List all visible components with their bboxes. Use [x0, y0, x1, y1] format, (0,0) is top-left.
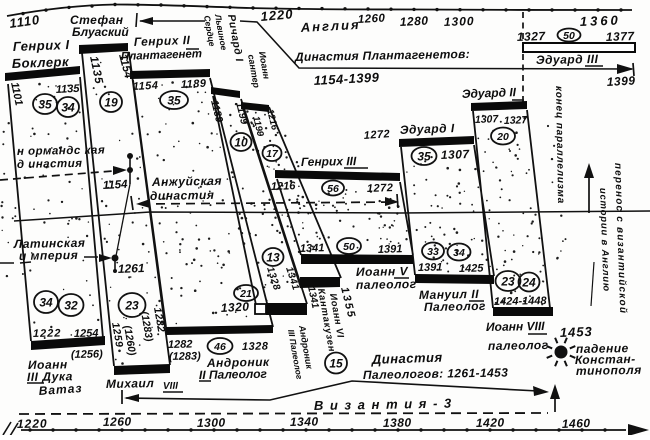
svg-text:35: 35	[167, 93, 181, 107]
svg-text:1135: 1135	[56, 83, 81, 96]
svg-text:Генрих I: Генрих I	[13, 37, 70, 54]
svg-text:1222: 1222	[33, 328, 62, 340]
svg-text:34: 34	[453, 247, 465, 259]
svg-text:Эдуард II: Эдуард II	[462, 85, 517, 101]
svg-text:Боклерк: Боклерк	[12, 54, 71, 71]
svg-text:н ормандс кая: н ормандс кая	[17, 144, 105, 158]
svg-text:24: 24	[521, 275, 536, 289]
svg-text:10: 10	[234, 135, 248, 149]
svg-text:35: 35	[417, 149, 431, 163]
svg-text:1360: 1360	[580, 13, 621, 29]
svg-text:33: 33	[427, 246, 439, 258]
svg-text:Эдуард I: Эдуард I	[400, 121, 455, 137]
svg-text:Михаил: Михаил	[106, 376, 155, 391]
svg-text:VIII: VIII	[163, 381, 178, 392]
svg-text:34: 34	[39, 295, 53, 309]
svg-text:Анжуйская: Анжуйская	[151, 174, 222, 189]
svg-text:II Палеолог: II Палеолог	[199, 367, 268, 382]
svg-text:1453: 1453	[560, 324, 593, 340]
svg-text:13: 13	[266, 250, 280, 264]
svg-text:1377: 1377	[606, 29, 636, 44]
svg-text:Эдуард III: Эдуард III	[536, 52, 599, 67]
svg-text:1420: 1420	[476, 416, 505, 430]
svg-text:50: 50	[563, 30, 575, 42]
svg-text:15: 15	[329, 356, 343, 370]
svg-text:1425: 1425	[459, 263, 485, 275]
svg-text:34: 34	[61, 100, 75, 114]
svg-text:Палеологов: 1261-1453: Палеологов: 1261-1453	[363, 365, 509, 382]
svg-text:1307: 1307	[441, 147, 471, 162]
svg-text:1424-1448: 1424-1448	[494, 295, 548, 308]
svg-text:50: 50	[343, 241, 355, 253]
svg-text:1282: 1282	[168, 339, 193, 351]
svg-text:тинополя: тинополя	[576, 363, 642, 378]
svg-text:1216: 1216	[271, 180, 297, 193]
svg-text:Генрих III: Генрих III	[301, 154, 357, 169]
svg-text:палеолог: палеолог	[488, 338, 549, 353]
svg-text:Палеолог: Палеолог	[424, 299, 486, 314]
svg-text:Иоанн VIII: Иоанн VIII	[486, 319, 546, 334]
svg-text:1220: 1220	[17, 416, 48, 431]
svg-text:1380: 1380	[383, 416, 412, 430]
svg-text:1154: 1154	[103, 179, 129, 192]
svg-text:23: 23	[124, 298, 139, 312]
svg-text:1272: 1272	[363, 128, 390, 142]
svg-text:(1283): (1283)	[169, 350, 201, 363]
svg-text:династия: династия	[150, 188, 215, 203]
svg-text:д инастия: д инастия	[17, 158, 83, 171]
svg-text:1189: 1189	[181, 78, 208, 91]
svg-text:Англия: Англия	[299, 17, 361, 35]
svg-text:1391: 1391	[418, 262, 443, 274]
svg-text:1340: 1340	[290, 415, 319, 429]
svg-text:1300: 1300	[197, 416, 226, 430]
svg-text:1327: 1327	[504, 114, 529, 127]
svg-text:1307: 1307	[475, 113, 500, 126]
svg-text:17: 17	[266, 148, 279, 160]
svg-text:1320: 1320	[220, 300, 249, 315]
svg-text:1328: 1328	[242, 341, 269, 353]
svg-text:1272: 1272	[367, 182, 394, 195]
svg-text:1260: 1260	[358, 13, 386, 26]
svg-text:В и з а н т и я - 3: В и з а н т и я - 3	[314, 396, 453, 413]
svg-text:1300: 1300	[444, 14, 475, 29]
svg-text:19: 19	[104, 95, 118, 109]
svg-text:23: 23	[500, 274, 515, 288]
svg-text:35: 35	[38, 97, 52, 111]
svg-text:1220: 1220	[260, 6, 294, 24]
svg-text:46: 46	[213, 341, 226, 353]
svg-text:палеолог: палеолог	[356, 277, 417, 292]
svg-text:Генрих II: Генрих II	[134, 33, 191, 49]
svg-text:32: 32	[64, 298, 78, 312]
svg-text:56: 56	[327, 183, 339, 195]
svg-text:20: 20	[496, 131, 509, 143]
svg-text:Династия: Династия	[371, 350, 443, 367]
svg-text:21: 21	[239, 288, 252, 300]
svg-text:1260: 1260	[103, 415, 132, 429]
svg-text:1399: 1399	[606, 74, 635, 89]
svg-text:Блуаский: Блуаский	[72, 25, 129, 39]
svg-text:(1256): (1256)	[71, 348, 103, 361]
svg-text:1280: 1280	[399, 14, 428, 29]
svg-text:1154: 1154	[133, 80, 159, 93]
svg-text:и мперия: и мперия	[19, 248, 79, 263]
svg-text:1391: 1391	[378, 243, 403, 256]
svg-text:1254: 1254	[74, 328, 99, 340]
svg-text:1341: 1341	[300, 242, 325, 255]
svg-text:1327: 1327	[517, 29, 547, 44]
svg-text:1261: 1261	[118, 261, 145, 276]
svg-text:конец параллелизма: конец параллелизма	[553, 86, 566, 204]
svg-text:1460: 1460	[562, 416, 591, 431]
